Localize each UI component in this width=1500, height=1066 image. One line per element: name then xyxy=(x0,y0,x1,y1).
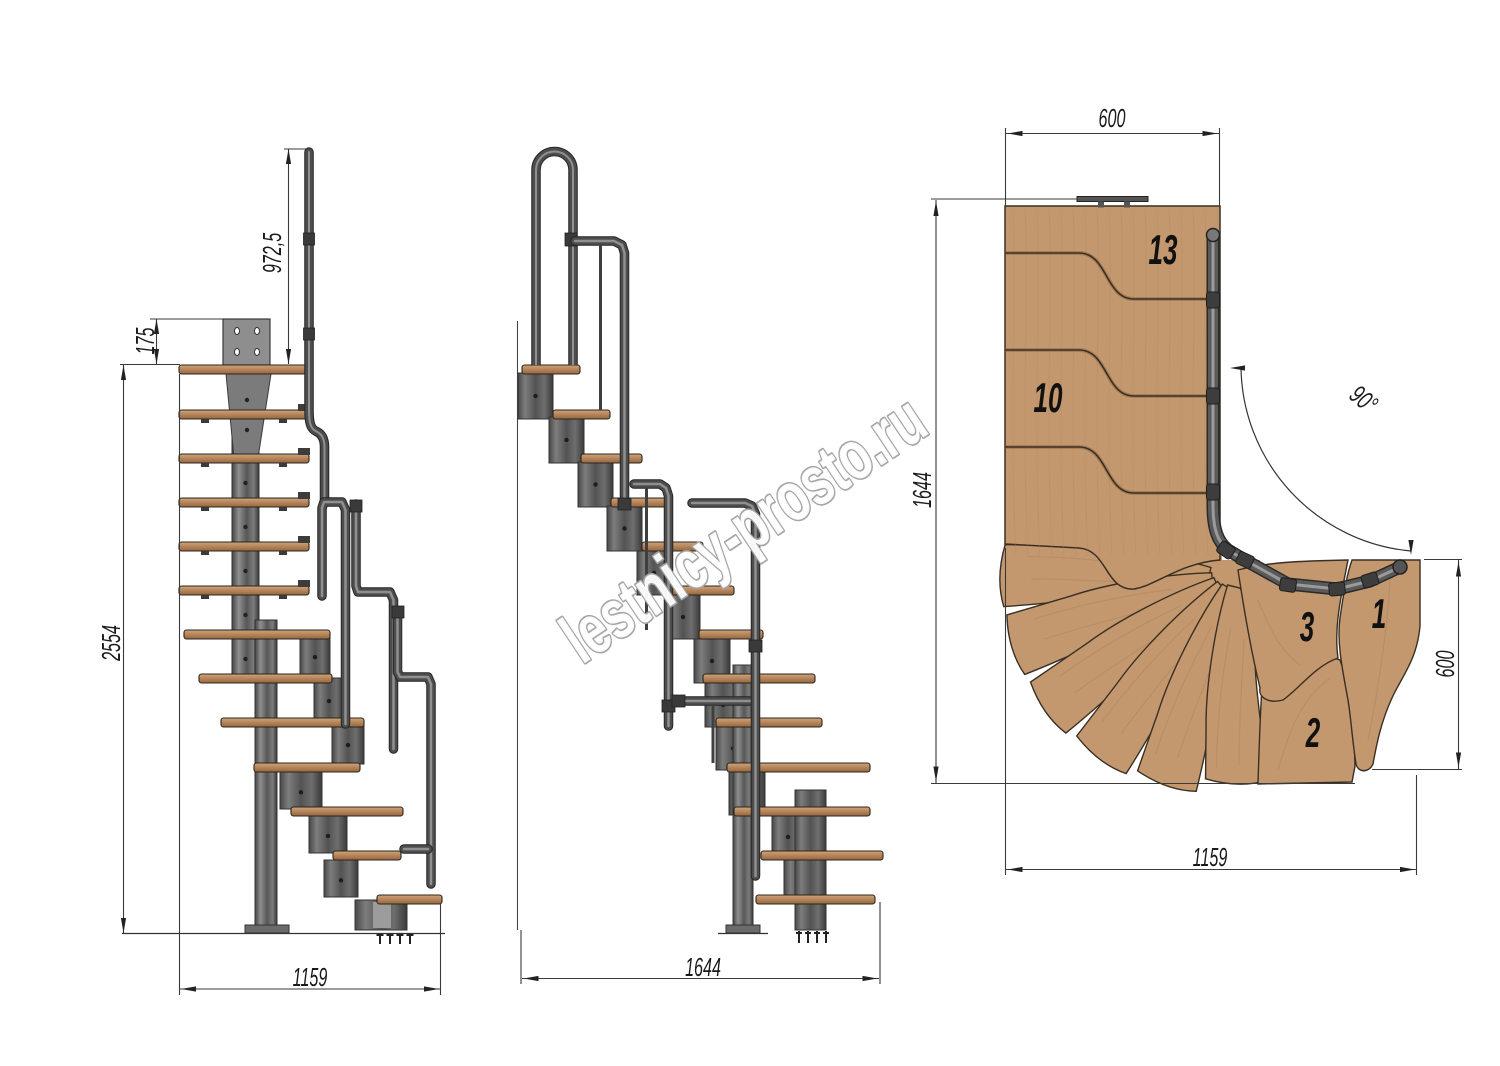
svg-text:600: 600 xyxy=(1099,103,1126,133)
svg-text:1159: 1159 xyxy=(293,962,328,992)
svg-text:3: 3 xyxy=(1300,604,1315,651)
svg-text:10: 10 xyxy=(1034,375,1063,422)
svg-text:1: 1 xyxy=(1372,591,1386,638)
svg-text:2: 2 xyxy=(1305,710,1321,757)
svg-text:1644: 1644 xyxy=(907,472,937,508)
svg-text:1644: 1644 xyxy=(685,952,721,982)
svg-text:2554: 2554 xyxy=(96,625,126,662)
svg-text:13: 13 xyxy=(1149,227,1178,274)
svg-text:972,5: 972,5 xyxy=(257,232,287,273)
svg-text:1159: 1159 xyxy=(1193,842,1228,872)
svg-text:600: 600 xyxy=(1430,651,1460,678)
svg-text:175: 175 xyxy=(130,327,160,355)
